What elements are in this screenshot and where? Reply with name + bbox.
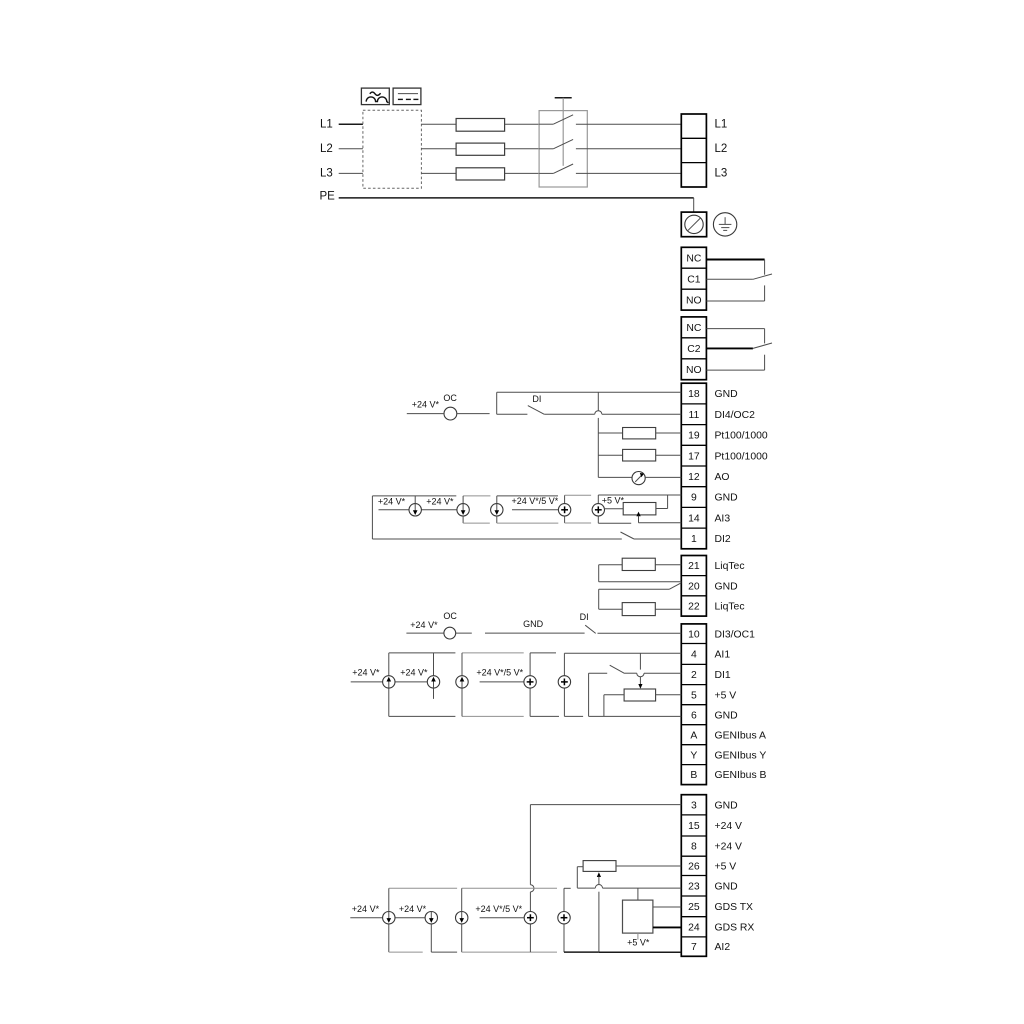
svg-text:5: 5 [691,690,697,701]
svg-text:DI1: DI1 [715,670,731,681]
svg-text:C1: C1 [687,274,701,285]
svg-text:GND: GND [715,493,738,504]
svg-text:+5 V: +5 V [715,861,737,872]
svg-text:18: 18 [688,389,700,400]
svg-text:NO: NO [686,365,702,376]
svg-text:DI: DI [580,612,589,622]
svg-text:GND: GND [523,619,544,629]
svg-text:7: 7 [691,942,697,953]
svg-text:NO: NO [686,295,702,306]
svg-text:+24 V*: +24 V* [378,497,406,507]
svg-text:+24 V*: +24 V* [352,668,380,678]
svg-text:DI4/OC2: DI4/OC2 [715,410,756,421]
svg-text:12: 12 [688,472,700,483]
svg-text:9: 9 [691,493,697,504]
svg-text:A: A [690,730,697,741]
svg-text:+5 V*: +5 V* [627,938,650,948]
svg-text:LiqTec: LiqTec [715,602,745,613]
svg-text:Y: Y [690,750,697,761]
svg-text:4: 4 [691,650,697,661]
svg-text:24: 24 [688,922,700,933]
svg-text:+24 V*: +24 V* [399,904,427,914]
svg-text:20: 20 [688,581,700,592]
svg-text:AO: AO [715,472,730,483]
svg-text:GDS TX: GDS TX [715,902,754,913]
svg-text:LiqTec: LiqTec [715,561,745,572]
svg-text:11: 11 [688,410,699,421]
svg-text:17: 17 [688,451,700,462]
svg-text:15: 15 [688,821,700,832]
svg-text:Pt100/1000: Pt100/1000 [715,431,768,442]
svg-text:+24 V*/5 V*: +24 V*/5 V* [476,668,523,678]
svg-text:1: 1 [691,534,697,545]
svg-text:+24 V: +24 V [715,821,743,832]
svg-text:GDS RX: GDS RX [715,922,755,933]
svg-text:GND: GND [715,389,738,400]
svg-text:L2: L2 [320,143,333,155]
svg-text:14: 14 [688,513,700,524]
svg-text:+5 V*: +5 V* [602,496,625,506]
svg-text:23: 23 [688,881,700,892]
svg-text:2: 2 [691,670,697,681]
svg-text:+24 V*: +24 V* [412,400,440,410]
svg-text:OC: OC [443,611,457,621]
svg-text:+24 V*/5 V*: +24 V*/5 V* [512,496,559,506]
svg-text:DI2: DI2 [715,534,731,545]
svg-text:GND: GND [715,881,738,892]
svg-text:+24 V: +24 V [715,842,743,853]
svg-text:26: 26 [688,861,700,872]
svg-text:GND: GND [715,581,738,592]
svg-text:DI: DI [532,394,541,404]
svg-text:GENIbus Y: GENIbus Y [715,750,767,761]
svg-text:L1: L1 [715,119,728,131]
svg-text:B: B [690,770,697,781]
svg-text:NC: NC [686,323,702,334]
svg-text:L3: L3 [715,167,728,179]
svg-text:L2: L2 [715,143,728,155]
svg-text:25: 25 [688,902,700,913]
svg-text:L1: L1 [320,118,333,130]
svg-text:+5 V: +5 V [715,690,737,701]
svg-text:NC: NC [686,253,702,264]
svg-text:C2: C2 [687,344,701,355]
svg-text:OC: OC [443,393,457,403]
svg-text:6: 6 [691,710,697,721]
svg-text:+24 V*: +24 V* [352,904,380,914]
svg-text:21: 21 [688,561,700,572]
svg-text:+24 V*: +24 V* [426,497,454,507]
svg-text:+24 V*: +24 V* [400,668,428,678]
svg-text:3: 3 [691,800,697,811]
svg-text:+24 V*: +24 V* [410,620,438,630]
svg-text:GENIbus A: GENIbus A [715,730,766,741]
svg-text:22: 22 [688,602,700,613]
svg-text:+24 V*/5 V*: +24 V*/5 V* [475,904,522,914]
svg-text:L3: L3 [320,168,333,180]
svg-text:PE: PE [320,191,336,203]
svg-text:AI1: AI1 [715,650,731,661]
svg-text:19: 19 [688,431,700,442]
svg-text:AI3: AI3 [715,513,731,524]
svg-text:GENIbus B: GENIbus B [715,770,767,781]
svg-text:DI3/OC1: DI3/OC1 [715,629,756,640]
svg-text:10: 10 [688,629,700,640]
svg-text:GND: GND [715,800,738,811]
svg-text:AI2: AI2 [715,942,731,953]
svg-text:Pt100/1000: Pt100/1000 [715,451,768,462]
svg-text:GND: GND [715,710,738,721]
svg-text:8: 8 [691,842,697,853]
